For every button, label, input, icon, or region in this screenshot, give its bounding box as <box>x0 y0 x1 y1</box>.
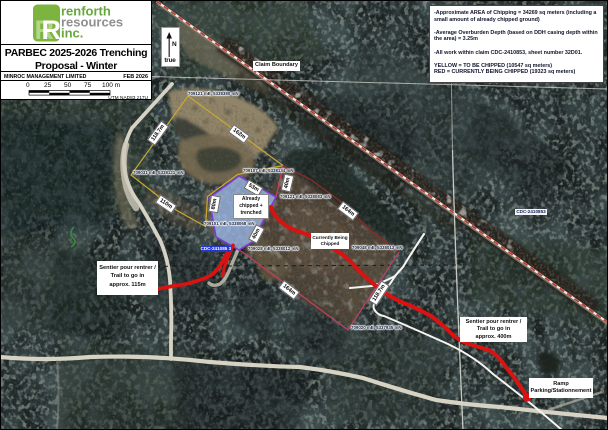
svg-text:inc.: inc. <box>61 26 83 41</box>
svg-text:R: R <box>42 15 62 44</box>
